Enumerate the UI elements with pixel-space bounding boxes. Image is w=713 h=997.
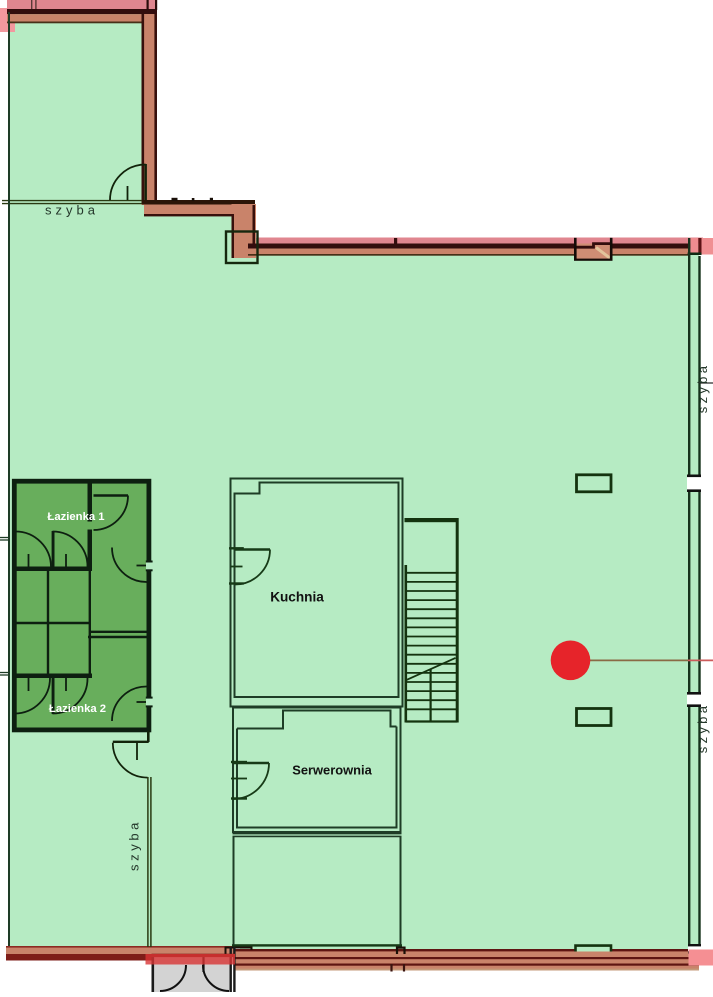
svg-text:Łazienka 2: Łazienka 2 bbox=[49, 703, 106, 715]
svg-text:szyba: szyba bbox=[45, 203, 99, 218]
svg-text:Kuchnia: Kuchnia bbox=[270, 590, 324, 605]
svg-text:szyba: szyba bbox=[695, 363, 710, 413]
svg-text:Serwerownia: Serwerownia bbox=[292, 763, 372, 778]
svg-text:szyba: szyba bbox=[127, 819, 142, 871]
svg-text:Łazienka 1: Łazienka 1 bbox=[47, 511, 104, 523]
svg-text:szyba: szyba bbox=[695, 703, 710, 753]
